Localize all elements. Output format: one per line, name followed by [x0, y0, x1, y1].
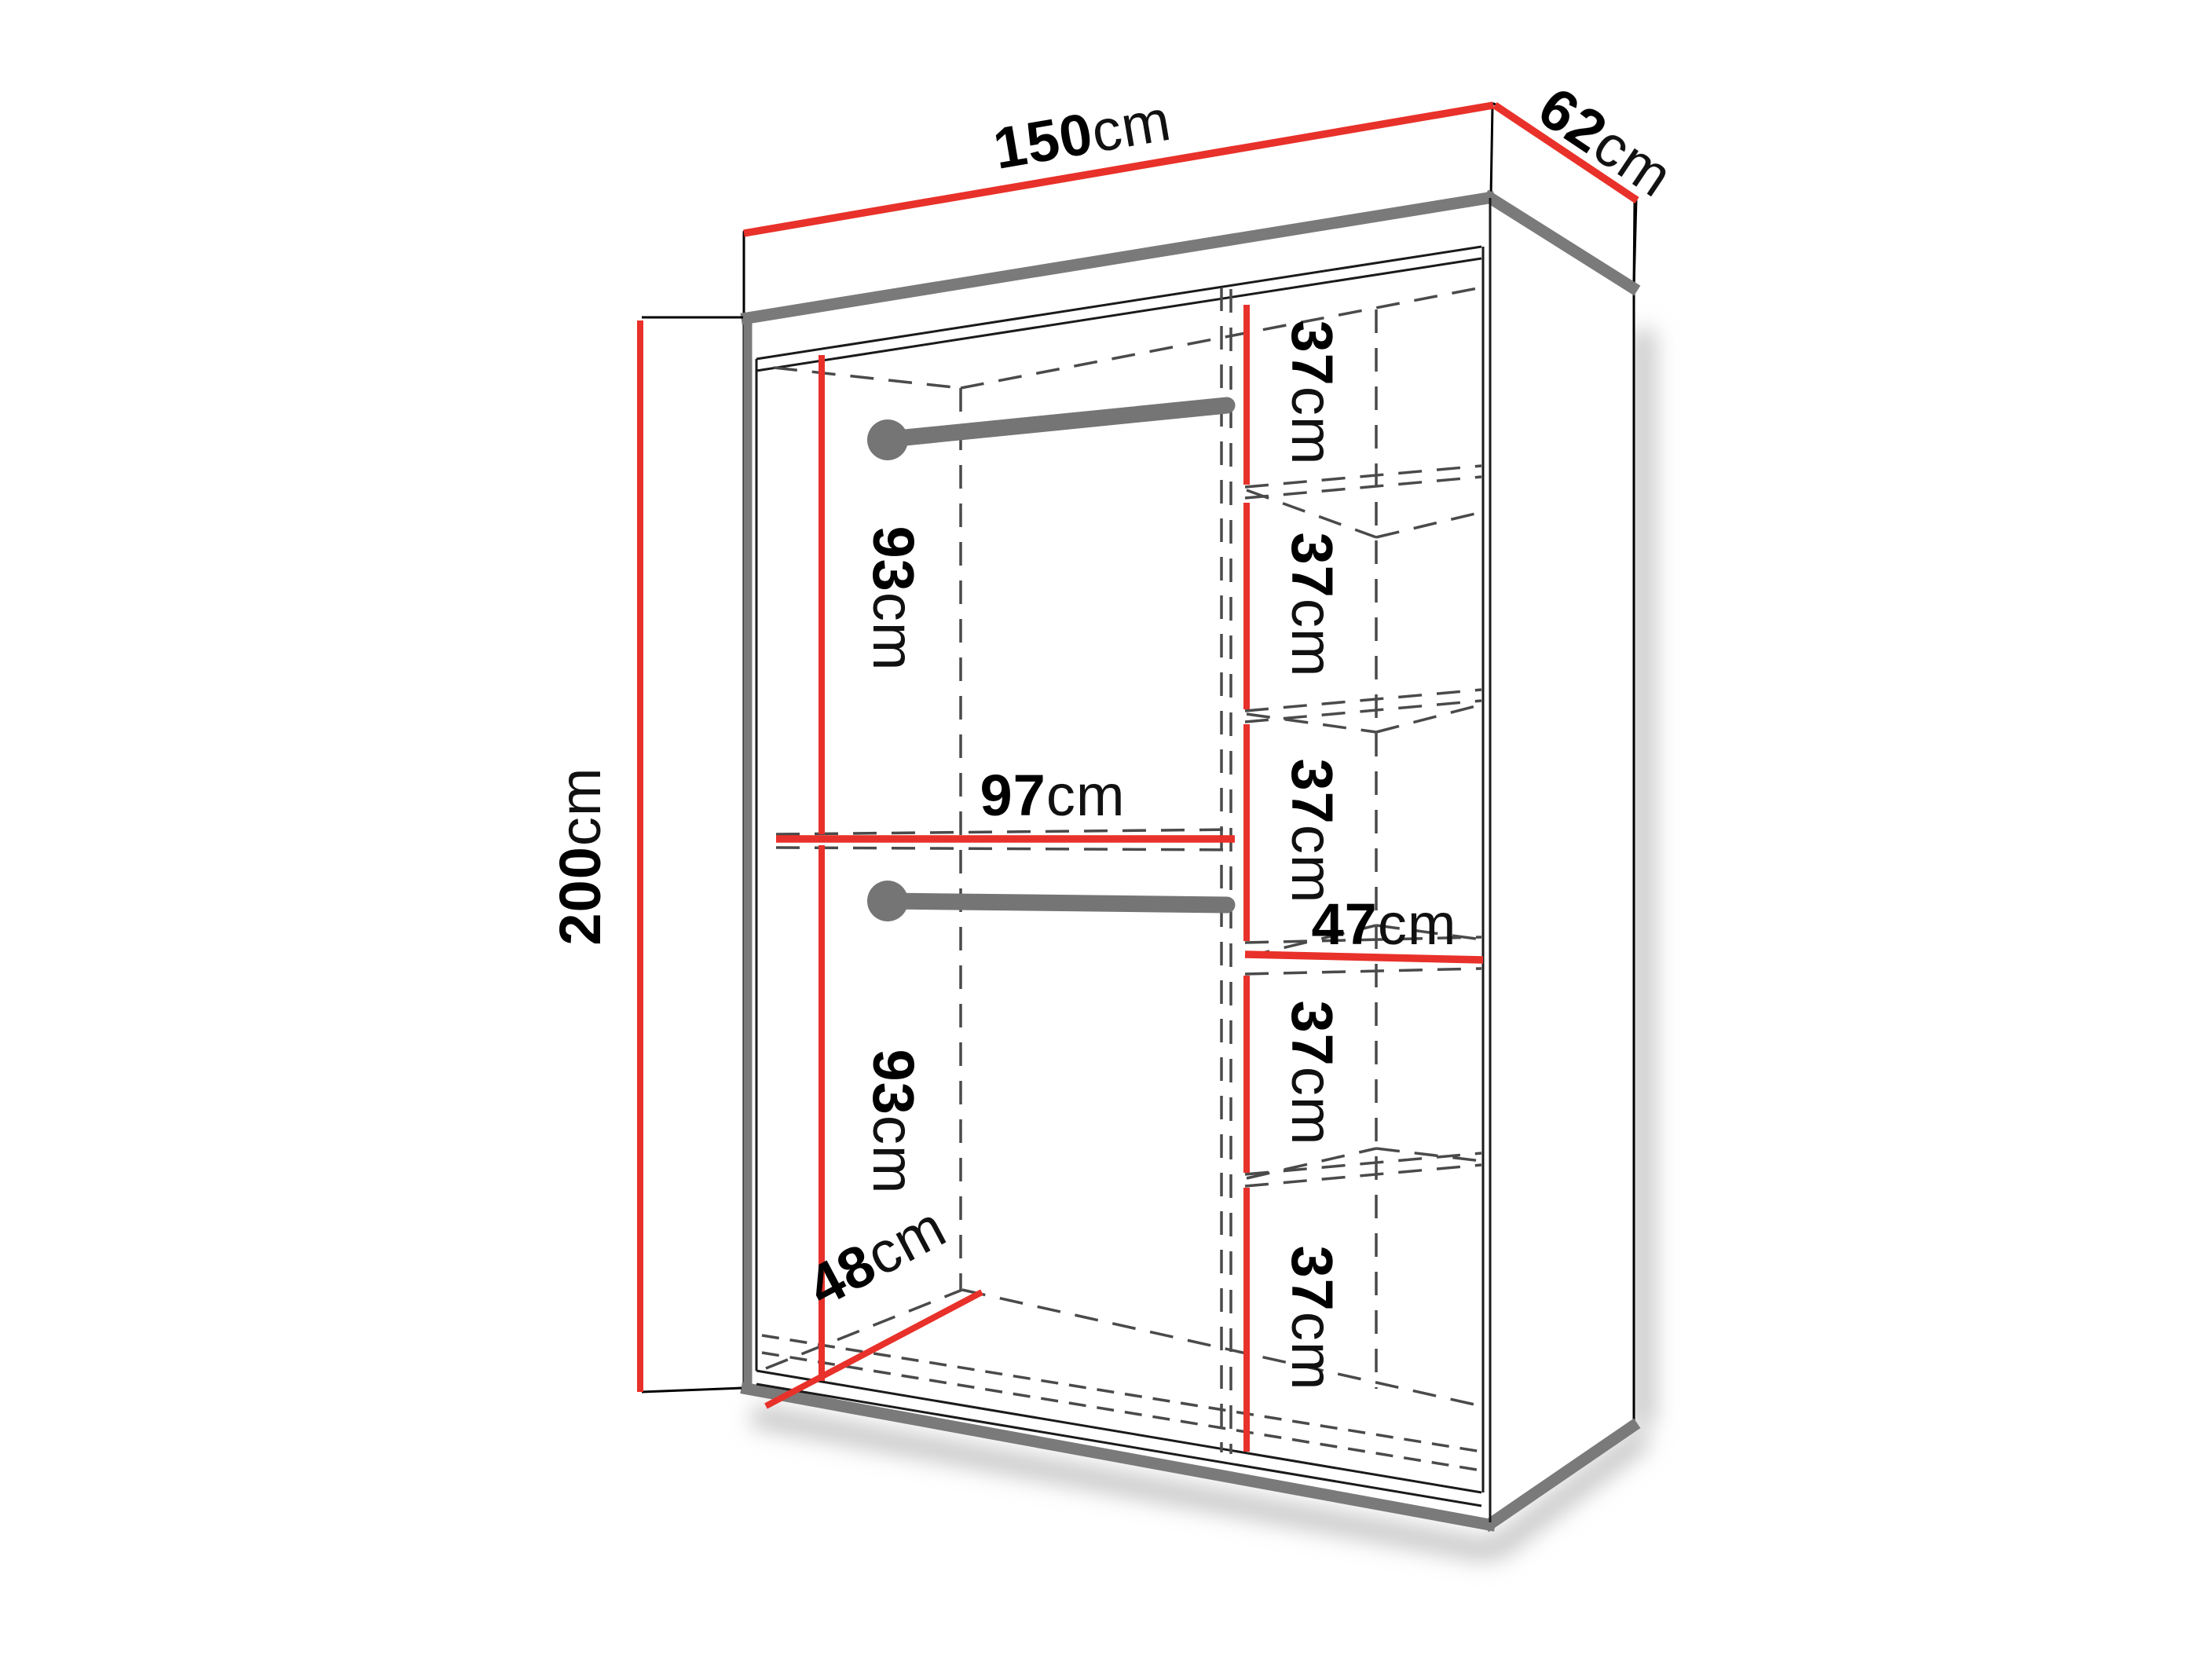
label-left-section-width: 97cm: [980, 763, 1126, 828]
label-shelf-spacing-5: 37cm: [1280, 1246, 1345, 1391]
wardrobe-dimension-diagram: 150cm 62cm 200cm 93cm 93cm 97cm 47cm 48c…: [0, 0, 2212, 1659]
diagram-canvas: 150cm 62cm 200cm 93cm 93cm 97cm 47cm 48c…: [0, 0, 2212, 1659]
label-lower-hanging: 93cm: [861, 1049, 926, 1195]
cabinet-body: [744, 104, 1636, 1524]
label-shelf-spacing-1: 37cm: [1280, 320, 1345, 466]
label-shelf-spacing-3: 37cm: [1280, 759, 1345, 904]
label-shelf-spacing-4: 37cm: [1280, 1001, 1345, 1146]
label-total-height: 200cm: [548, 767, 613, 945]
label-shelf-spacing-2: 37cm: [1280, 533, 1345, 678]
label-upper-hanging: 93cm: [861, 526, 926, 672]
